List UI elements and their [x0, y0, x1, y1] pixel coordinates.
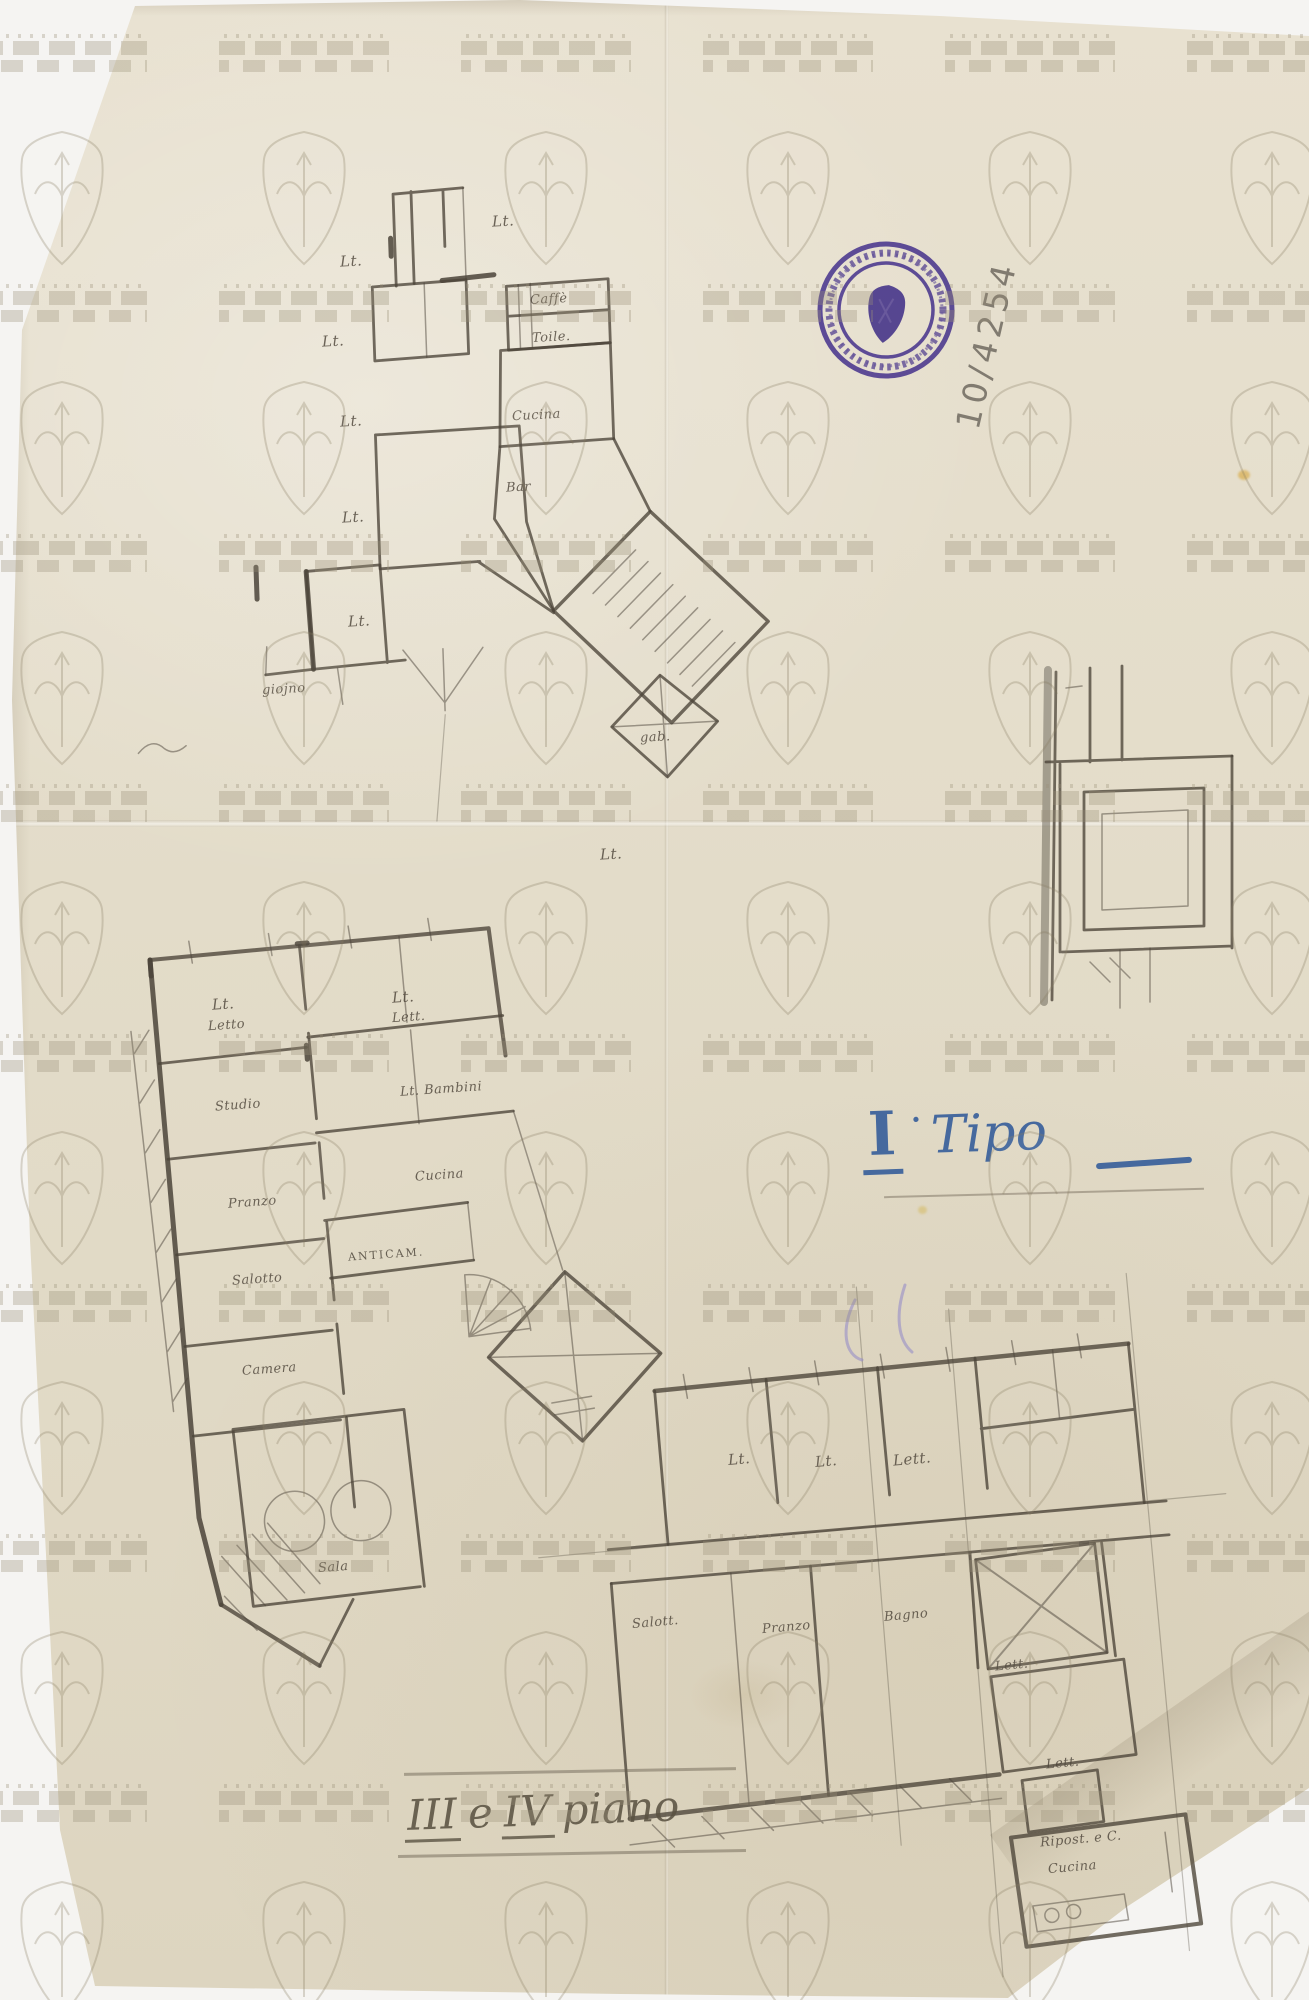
- caption-word: piano: [553, 1781, 688, 1835]
- caption-roman-b: IV: [500, 1786, 555, 1840]
- room-label: Lt.: [727, 1449, 751, 1469]
- floor-plan-drawing: [0, 0, 1309, 2000]
- room-label: giojno: [262, 681, 306, 698]
- type-annotation: I·Tipo: [861, 1093, 1048, 1170]
- type-note-word: Tipo: [930, 1102, 1048, 1166]
- room-label: Bar: [506, 479, 532, 495]
- room-label: Lt.: [492, 211, 515, 230]
- caption-roman-a: III: [403, 1789, 461, 1843]
- caption-conjunction: e: [459, 1788, 502, 1838]
- upper-floor-plan: [119, 178, 775, 832]
- room-label: Lt.: [391, 987, 414, 1007]
- room-label: Lt.: [340, 411, 363, 430]
- room-label: Toile.: [532, 329, 571, 346]
- room-label: Lt.: [211, 994, 234, 1014]
- room-label: Lett.: [1045, 1755, 1080, 1773]
- type-note-separator: ·: [901, 1097, 931, 1144]
- room-label: gab.: [640, 729, 671, 746]
- room-label: Lett.: [994, 1657, 1029, 1675]
- room-label: Lt.: [348, 611, 371, 630]
- archive-stamp: [806, 230, 966, 390]
- floor-caption: IIIeIVpiano: [403, 1781, 688, 1840]
- room-label: Lett.: [892, 1448, 932, 1469]
- room-label: Lett.: [392, 1009, 426, 1026]
- violet-scribble: [846, 1285, 912, 1360]
- stamp-shield-icon: [865, 283, 907, 345]
- room-label: Letto: [208, 1017, 246, 1035]
- room-label: Lt.: [600, 844, 623, 863]
- room-label: Lt.: [340, 251, 363, 270]
- room-label: Studio: [215, 1096, 262, 1114]
- detached-sketch: [1044, 666, 1232, 1008]
- room-label: Caffè: [530, 291, 568, 308]
- room-label: Lt.: [322, 331, 345, 350]
- room-label: Sala: [318, 1559, 350, 1576]
- right-wing-floor-plan: [518, 1257, 1266, 2000]
- type-note-numeral: I: [861, 1099, 904, 1175]
- room-label: Lt.: [342, 507, 365, 526]
- room-label: Lt.: [814, 1451, 838, 1471]
- room-label: Cucina: [512, 407, 562, 425]
